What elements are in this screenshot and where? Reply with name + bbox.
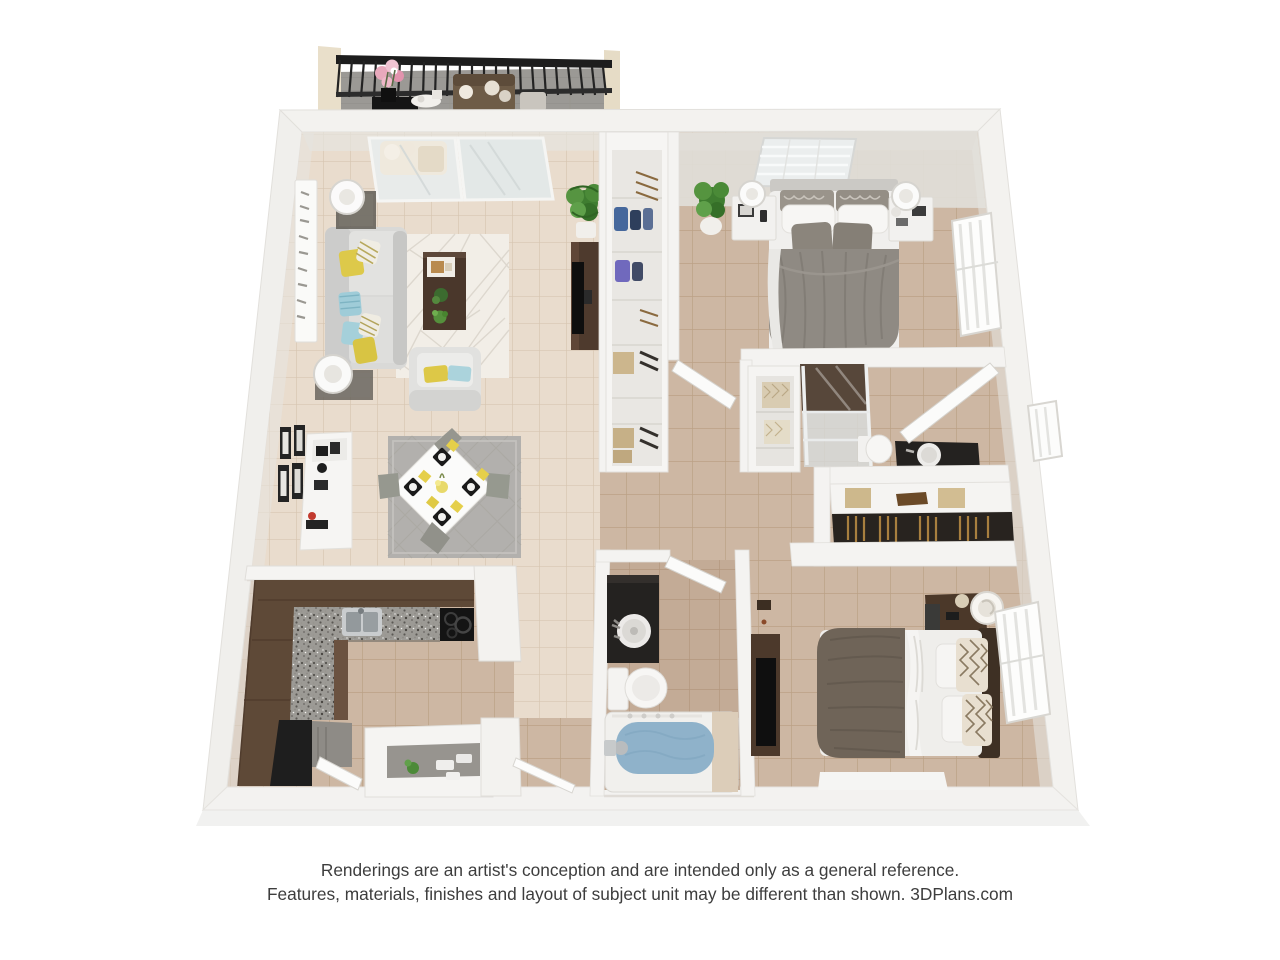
svg-text:Renderings are an artist's con: Renderings are an artist's conception an… [321,860,959,880]
svg-text:Features, materials, finishes: Features, materials, finishes and layout… [267,884,1013,904]
